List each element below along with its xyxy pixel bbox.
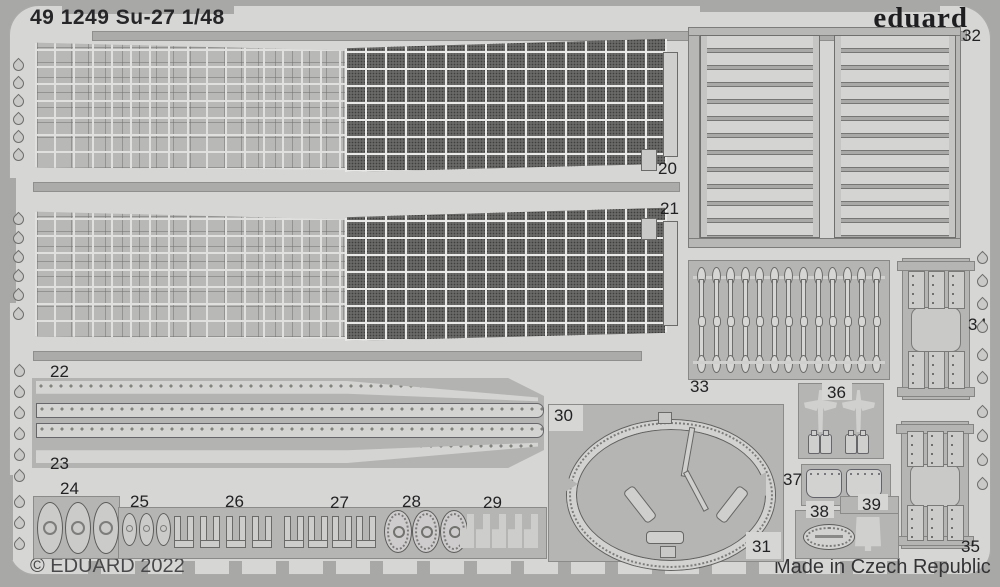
part-36-bottle — [808, 434, 820, 454]
part-25-oval — [122, 513, 137, 546]
finger-part — [908, 271, 925, 309]
baluster-part — [726, 267, 735, 373]
riveted-strip — [36, 423, 544, 438]
part-32-louver-panels — [688, 27, 960, 246]
part-label-20: 20 — [658, 159, 677, 179]
finger-part — [947, 431, 964, 467]
baluster-bulge — [858, 316, 866, 327]
baluster-part — [741, 267, 750, 373]
louver-frame-top — [688, 27, 961, 36]
baluster-part — [755, 267, 764, 373]
baluster-bulge — [844, 316, 852, 327]
fine-mesh — [345, 205, 667, 341]
bracket-foot — [284, 540, 304, 548]
baluster-bulge — [713, 316, 721, 327]
bracket-foot — [308, 540, 328, 548]
part-26-bracket — [226, 516, 246, 548]
baluster-part — [770, 267, 779, 373]
baluster-bulge — [771, 316, 779, 327]
bracket-foot — [200, 540, 220, 548]
part-33-slat-row — [688, 260, 890, 380]
part-label-31: 31 — [752, 537, 771, 557]
part-24-oval — [65, 502, 91, 554]
part-28-oval — [412, 510, 440, 553]
part-36-bottle — [845, 434, 857, 454]
frame-left-tab — [0, 475, 13, 560]
ring-connector-tab — [660, 546, 676, 558]
part-label-30: 30 — [554, 406, 573, 426]
baluster-group — [697, 265, 881, 375]
bracket-foot — [174, 540, 194, 548]
bracket-foot — [226, 540, 246, 548]
finger-part — [948, 271, 965, 309]
baluster-bulge — [873, 316, 881, 327]
part-20-mesh-screen — [33, 34, 678, 176]
part-35-plate — [901, 421, 969, 549]
louver-grille — [701, 36, 819, 237]
finger-part — [948, 351, 965, 389]
baluster-bulge — [815, 316, 823, 327]
finger-part — [908, 351, 925, 389]
baluster-bulge — [785, 316, 793, 327]
part-36-bottle — [820, 434, 832, 454]
finger-part — [928, 351, 945, 389]
part-24-oval — [37, 502, 63, 554]
louver-frame-bottom — [688, 238, 961, 248]
finger-part — [907, 431, 924, 467]
made-in-text: Made in Czech Republic — [774, 556, 991, 579]
part-26-bracket — [252, 516, 272, 548]
part-25-oval — [139, 513, 154, 546]
part-28-oval — [384, 510, 412, 553]
louver-grille — [835, 36, 955, 237]
baluster-part — [828, 267, 837, 373]
baluster-part — [872, 267, 881, 373]
part-27-bracket — [332, 516, 352, 548]
coarse-grid-mesh — [35, 209, 345, 339]
part-25-oval — [156, 513, 171, 546]
fine-mesh — [345, 36, 667, 172]
baluster-bulge — [742, 316, 750, 327]
part-label-36: 36 — [827, 383, 846, 403]
screen-end-bar — [663, 52, 678, 157]
part-label-25: 25 — [130, 492, 149, 512]
bracket-foot — [356, 540, 376, 548]
part-34-plate — [902, 258, 970, 400]
part-label-29: 29 — [483, 493, 502, 513]
coarse-grid-mesh — [35, 40, 345, 170]
part-label-26: 26 — [225, 492, 244, 512]
part-37-pad — [806, 469, 842, 498]
baluster-part — [857, 267, 866, 373]
part-26-bracket — [174, 516, 194, 548]
baluster-part — [712, 267, 721, 373]
part-21-mesh-screen — [33, 203, 678, 345]
part-36-bottle — [857, 434, 869, 454]
part-label-21: 21 — [660, 199, 679, 219]
part-label-24: 24 — [60, 479, 79, 499]
baluster-bulge — [727, 316, 735, 327]
louver-frame-left — [688, 27, 700, 248]
riveted-strip — [36, 403, 544, 418]
finger-part — [907, 505, 924, 541]
part-label-27: 27 — [330, 493, 349, 513]
sheet-title: 49 1249 Su-27 1/48 — [30, 6, 225, 30]
screen-end-bar — [663, 221, 678, 326]
plate-cap — [897, 261, 975, 271]
baluster-bulge — [756, 316, 764, 327]
part-label-33: 33 — [690, 377, 709, 397]
part-27-bracket — [308, 516, 328, 548]
center-panel — [911, 307, 961, 352]
frame-right-bar — [991, 0, 1000, 587]
part-27-bracket — [284, 516, 304, 548]
finger-part — [928, 271, 945, 309]
part-24-oval — [93, 502, 119, 554]
baluster-part — [799, 267, 808, 373]
photo-etch-fret-scan: 49 1249 Su-27 1/48 eduard © EDUARD 2022 … — [0, 0, 1000, 587]
carrier-rail — [33, 351, 642, 361]
finger-part — [927, 505, 944, 541]
part-label-28: 28 — [402, 492, 421, 512]
part-39-bucket — [855, 517, 881, 551]
part-38-oval-panel — [803, 524, 855, 550]
baluster-part — [697, 267, 706, 373]
part-27-bracket — [356, 516, 376, 548]
part-label-23: 23 — [50, 454, 69, 474]
baluster-part — [784, 267, 793, 373]
ring-inner-tab — [646, 531, 684, 544]
finger-part — [947, 505, 964, 541]
bracket-foot — [252, 540, 272, 548]
carrier-rail — [33, 182, 680, 192]
part-label-22: 22 — [50, 362, 69, 382]
part-label-39: 39 — [862, 495, 881, 515]
finger-part — [927, 431, 944, 467]
part-label-35: 35 — [961, 537, 980, 557]
small-connector-part — [641, 149, 657, 171]
bracket-foot — [332, 540, 352, 548]
part-label-32: 32 — [962, 26, 981, 46]
part-label-38: 38 — [810, 502, 829, 522]
baluster-bulge — [698, 316, 706, 327]
baluster-bulge — [829, 316, 837, 327]
ring-connector-tab — [658, 412, 672, 424]
center-panel — [910, 464, 960, 507]
small-connector-part — [641, 218, 657, 240]
baluster-bulge — [800, 316, 808, 327]
baluster-part — [814, 267, 823, 373]
part-26-bracket — [200, 516, 220, 548]
baluster-part — [843, 267, 852, 373]
part-label-37: 37 — [783, 470, 802, 490]
